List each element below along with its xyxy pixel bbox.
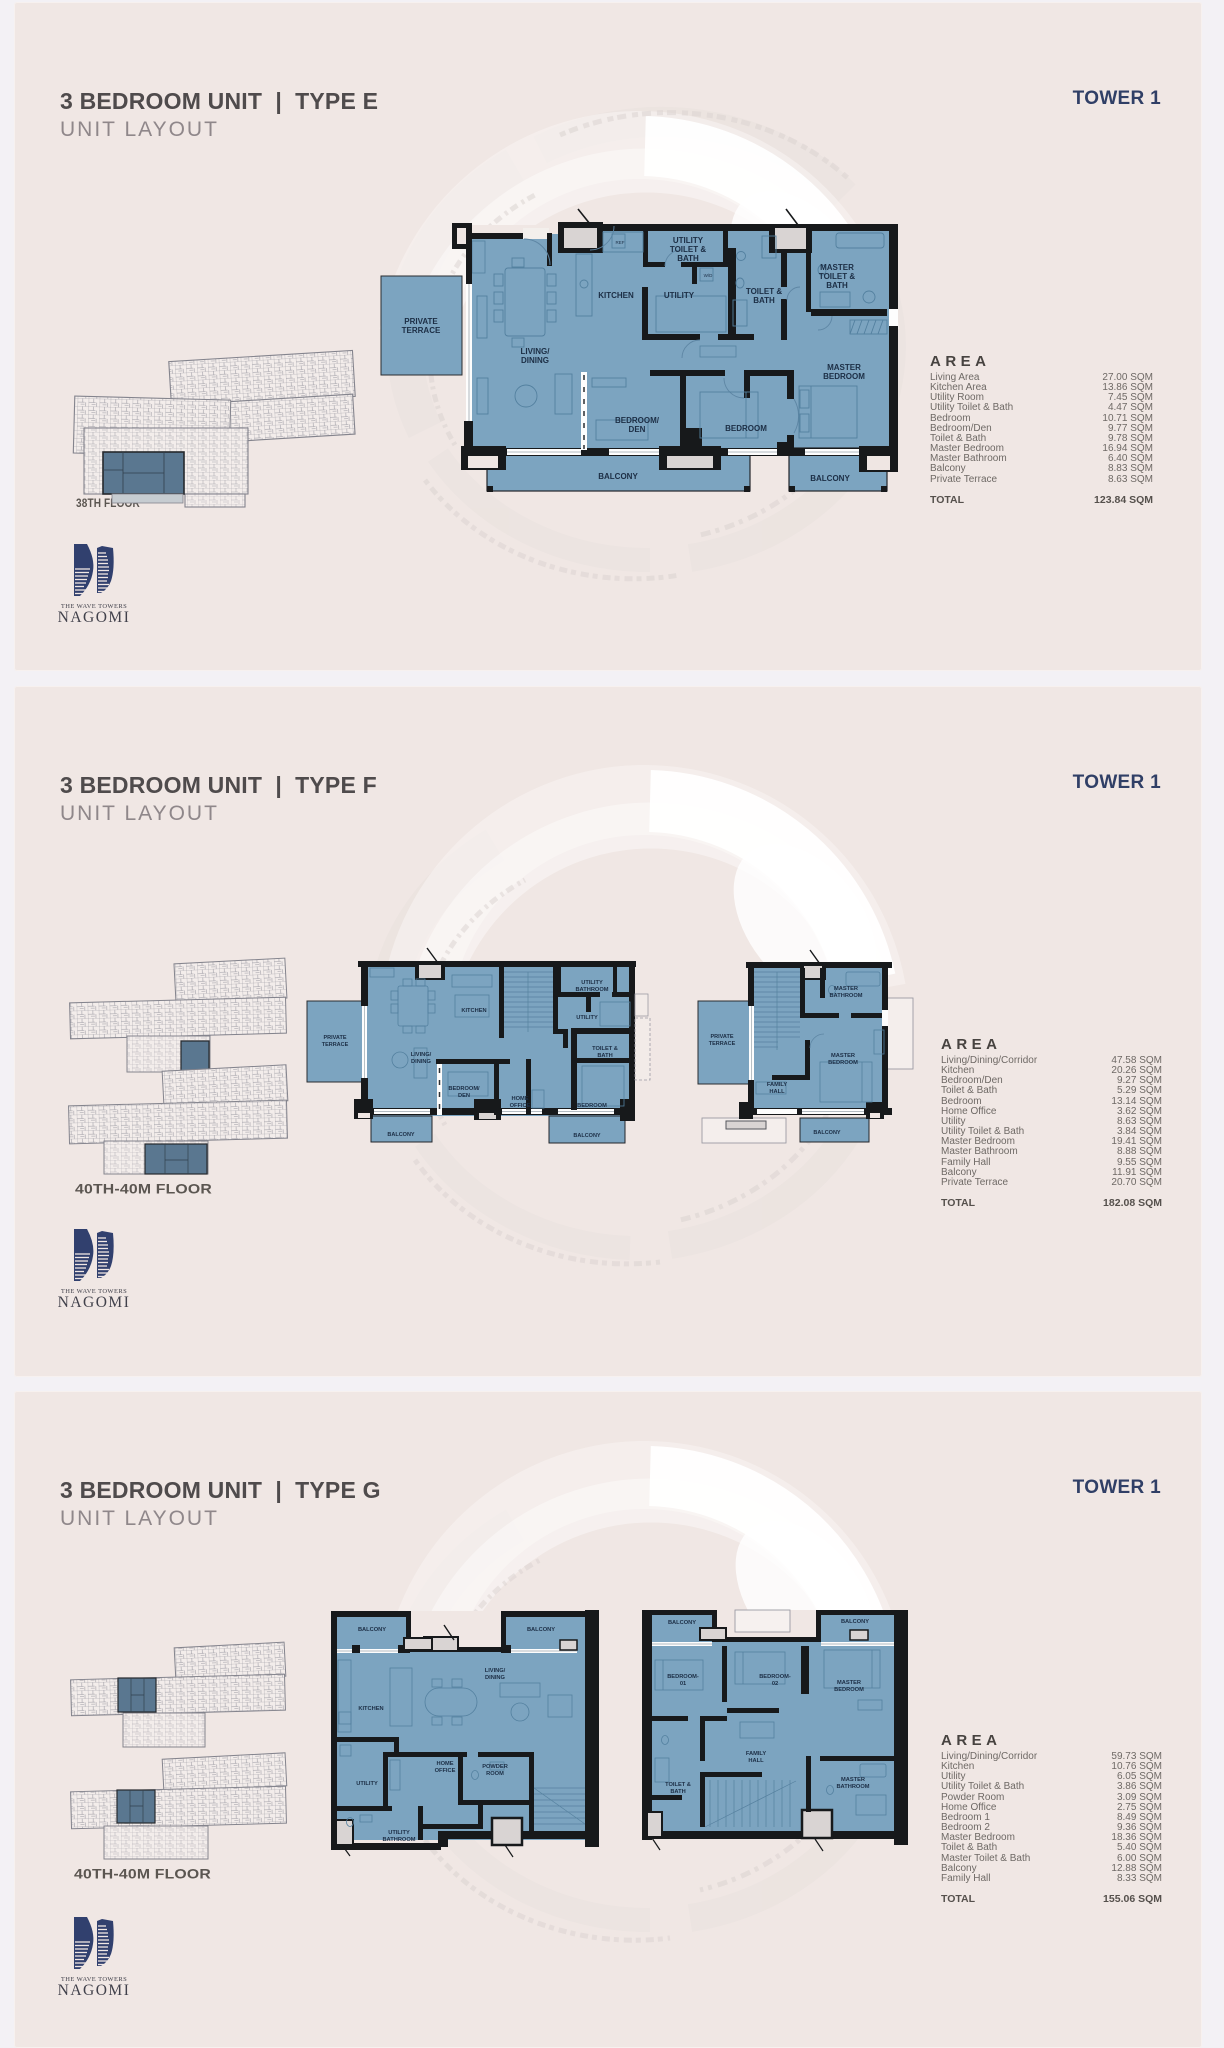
- svg-text:TOILET &: TOILET &: [819, 272, 856, 281]
- svg-text:TERRACE: TERRACE: [322, 1042, 349, 1048]
- svg-text:BALCONY: BALCONY: [527, 1627, 555, 1633]
- svg-text:MASTER: MASTER: [841, 1777, 865, 1783]
- svg-text:ROOM: ROOM: [486, 1771, 504, 1777]
- svg-text:HALL: HALL: [748, 1758, 764, 1764]
- svg-text:TERRACE: TERRACE: [402, 326, 441, 335]
- svg-text:BATH: BATH: [826, 281, 848, 290]
- svg-text:TOILET &: TOILET &: [592, 1046, 618, 1052]
- svg-text:BALCONY: BALCONY: [841, 1619, 869, 1625]
- svg-text:BATHROOM: BATHROOM: [829, 993, 862, 999]
- svg-text:BATH: BATH: [677, 254, 699, 263]
- svg-text:LIVING/: LIVING/: [411, 1052, 432, 1058]
- svg-text:MASTER: MASTER: [834, 986, 858, 992]
- svg-text:TERRACE: TERRACE: [709, 1041, 736, 1047]
- svg-text:TOILET &: TOILET &: [665, 1782, 691, 1788]
- svg-text:BEDROOM: BEDROOM: [834, 1687, 864, 1693]
- svg-text:BALCONY: BALCONY: [813, 1130, 841, 1136]
- svg-text:UTILITY: UTILITY: [356, 1781, 378, 1787]
- svg-text:BEDROOM: BEDROOM: [828, 1060, 858, 1066]
- svg-text:DEN: DEN: [458, 1093, 470, 1099]
- svg-text:TOILET &: TOILET &: [670, 245, 707, 254]
- svg-text:HOME: HOME: [511, 1096, 528, 1102]
- svg-text:BATHROOM: BATHROOM: [575, 987, 608, 993]
- svg-text:MASTER: MASTER: [820, 263, 854, 272]
- svg-text:KITCHEN: KITCHEN: [598, 291, 634, 300]
- svg-text:DINING: DINING: [485, 1675, 505, 1681]
- svg-text:REF: REF: [616, 240, 625, 245]
- svg-text:KITCHEN: KITCHEN: [461, 1008, 486, 1014]
- svg-text:BALCONY: BALCONY: [598, 472, 638, 481]
- svg-text:PRIVATE: PRIVATE: [404, 317, 438, 326]
- svg-text:BATHROOM: BATHROOM: [382, 1837, 415, 1843]
- svg-text:BATHROOM: BATHROOM: [836, 1784, 869, 1790]
- svg-text:BATH: BATH: [753, 296, 775, 305]
- svg-text:UTILITY: UTILITY: [581, 980, 603, 986]
- svg-text:BATH: BATH: [597, 1053, 612, 1059]
- svg-text:MASTER: MASTER: [837, 1680, 861, 1686]
- svg-text:DINING: DINING: [411, 1059, 431, 1065]
- svg-text:UTILITY: UTILITY: [576, 1015, 598, 1021]
- svg-text:FAMILY: FAMILY: [767, 1082, 788, 1088]
- svg-text:TOILET &: TOILET &: [746, 287, 783, 296]
- svg-text:DINING: DINING: [521, 356, 549, 365]
- svg-text:BALCONY: BALCONY: [573, 1133, 601, 1139]
- svg-text:BALCONY: BALCONY: [358, 1627, 386, 1633]
- svg-text:BEDROOM: BEDROOM: [577, 1103, 607, 1109]
- svg-text:UTILITY: UTILITY: [673, 236, 704, 245]
- svg-text:POWDER: POWDER: [482, 1764, 508, 1770]
- svg-text:BALCONY: BALCONY: [668, 1620, 696, 1626]
- svg-text:BEDROOM: BEDROOM: [725, 424, 767, 433]
- svg-text:BEDROOM: BEDROOM: [823, 372, 865, 381]
- svg-text:BATH: BATH: [670, 1789, 685, 1795]
- svg-text:BALCONY: BALCONY: [387, 1132, 415, 1138]
- svg-text:HOME: HOME: [436, 1761, 453, 1767]
- svg-text:BALCONY: BALCONY: [810, 474, 850, 483]
- svg-text:02: 02: [772, 1681, 778, 1687]
- svg-text:MASTER: MASTER: [827, 363, 861, 372]
- svg-text:BEDROOM-: BEDROOM-: [667, 1674, 699, 1680]
- svg-text:FAMILY: FAMILY: [746, 1751, 767, 1757]
- svg-text:DEN: DEN: [629, 425, 646, 434]
- svg-text:PRIVATE: PRIVATE: [710, 1034, 733, 1040]
- svg-text:BEDROOM/: BEDROOM/: [448, 1086, 480, 1092]
- svg-text:W/D: W/D: [704, 273, 713, 278]
- svg-text:MASTER: MASTER: [831, 1053, 855, 1059]
- svg-text:01: 01: [680, 1681, 686, 1687]
- svg-text:UTILITY: UTILITY: [388, 1830, 410, 1836]
- svg-text:HALL: HALL: [769, 1089, 785, 1095]
- svg-text:BEDROOM-: BEDROOM-: [759, 1674, 791, 1680]
- svg-text:PRIVATE: PRIVATE: [323, 1035, 346, 1041]
- svg-text:OFFICE: OFFICE: [435, 1768, 456, 1774]
- svg-text:OFFICE: OFFICE: [510, 1103, 531, 1109]
- svg-text:UTILITY: UTILITY: [664, 291, 695, 300]
- svg-text:KITCHEN: KITCHEN: [358, 1706, 383, 1712]
- svg-text:LIVING/: LIVING/: [485, 1668, 506, 1674]
- svg-text:BEDROOM/: BEDROOM/: [615, 416, 660, 425]
- svg-text:LIVING/: LIVING/: [521, 347, 551, 356]
